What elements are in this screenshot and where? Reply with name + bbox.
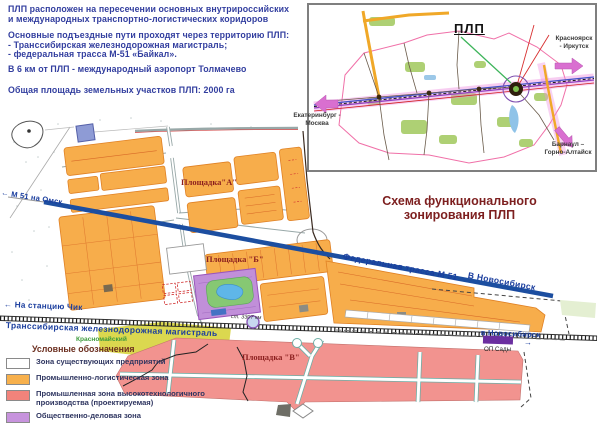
inset-label-east: Красноярск - Иркутск	[551, 35, 597, 50]
plp-pointer-line	[461, 37, 511, 83]
intro-line: В 6 км от ПЛП - международный аэропорт Т…	[8, 65, 308, 75]
parcel-blue	[76, 124, 95, 142]
legend-item-business: Общественно-деловая зона	[6, 412, 256, 423]
inset-label-south: Барнаул – Горно-Алтайск	[539, 141, 597, 156]
inset-plp-label: ПЛП	[454, 21, 485, 36]
proposed-blocks	[162, 281, 192, 304]
rail-east-arrow-icon: →	[524, 338, 532, 347]
legend-swatch-business	[6, 412, 30, 423]
zone-business	[194, 268, 261, 319]
legend-label: Промышленная зона высокотехнологичного п…	[36, 390, 205, 407]
west-arrow-icon: ←	[1, 188, 10, 198]
legend: Условные обозначения Зона существующих п…	[6, 344, 256, 423]
legend-label: Промышленно-логистическая зона	[36, 374, 169, 383]
site-b-label: Площадка "Б"	[206, 254, 264, 264]
legend-label: Общественно-деловая зона	[36, 412, 141, 421]
zone-existing	[167, 244, 207, 274]
legend-item-hightech: Промышленная зона высокотехнологичного п…	[6, 390, 256, 407]
legend-swatch-existing	[6, 358, 30, 369]
page: ПЛП Екатеринбург - Москва Красноярск - И…	[0, 0, 600, 423]
west-arrow-icon: ←	[4, 300, 13, 309]
legend-label: Зона существующих предприятий	[36, 358, 165, 367]
map-title: Схема функционального зонирования ПЛП	[372, 194, 547, 222]
site-a-label: Площадка"А"	[181, 177, 237, 187]
m51-east-arrow-icon: →	[510, 283, 521, 295]
legend-title: Условные обозначения	[32, 344, 256, 354]
legend-swatch-logistics	[6, 374, 30, 385]
legend-item-logistics: Промышленно-логистическая зона	[6, 374, 256, 385]
map-title-line2: зонирования ПЛП	[372, 208, 547, 222]
district-label: Красномайский	[76, 336, 127, 343]
intro-line: Общая площадь земельных участков ПЛП: 20…	[8, 86, 308, 96]
map-title-line1: Схема функционального	[372, 194, 547, 208]
intro-line: - федеральная трасса М-51 «Байкал».	[8, 50, 308, 60]
rail-stop-label: ОП Сады	[484, 346, 511, 353]
legend-swatch-hightech	[6, 390, 30, 401]
inset-label-west: Екатеринбург - Москва	[286, 112, 348, 127]
arrow-east	[555, 58, 583, 74]
pond	[12, 121, 43, 148]
legend-item-existing: Зона существующих предприятий	[6, 358, 256, 369]
rail-km-label: ст. 3307 км	[231, 314, 262, 321]
intro-line: и международных транспортно-логистически…	[8, 15, 308, 25]
intro-text: ПЛП расположен на пересечении основных в…	[8, 5, 308, 95]
